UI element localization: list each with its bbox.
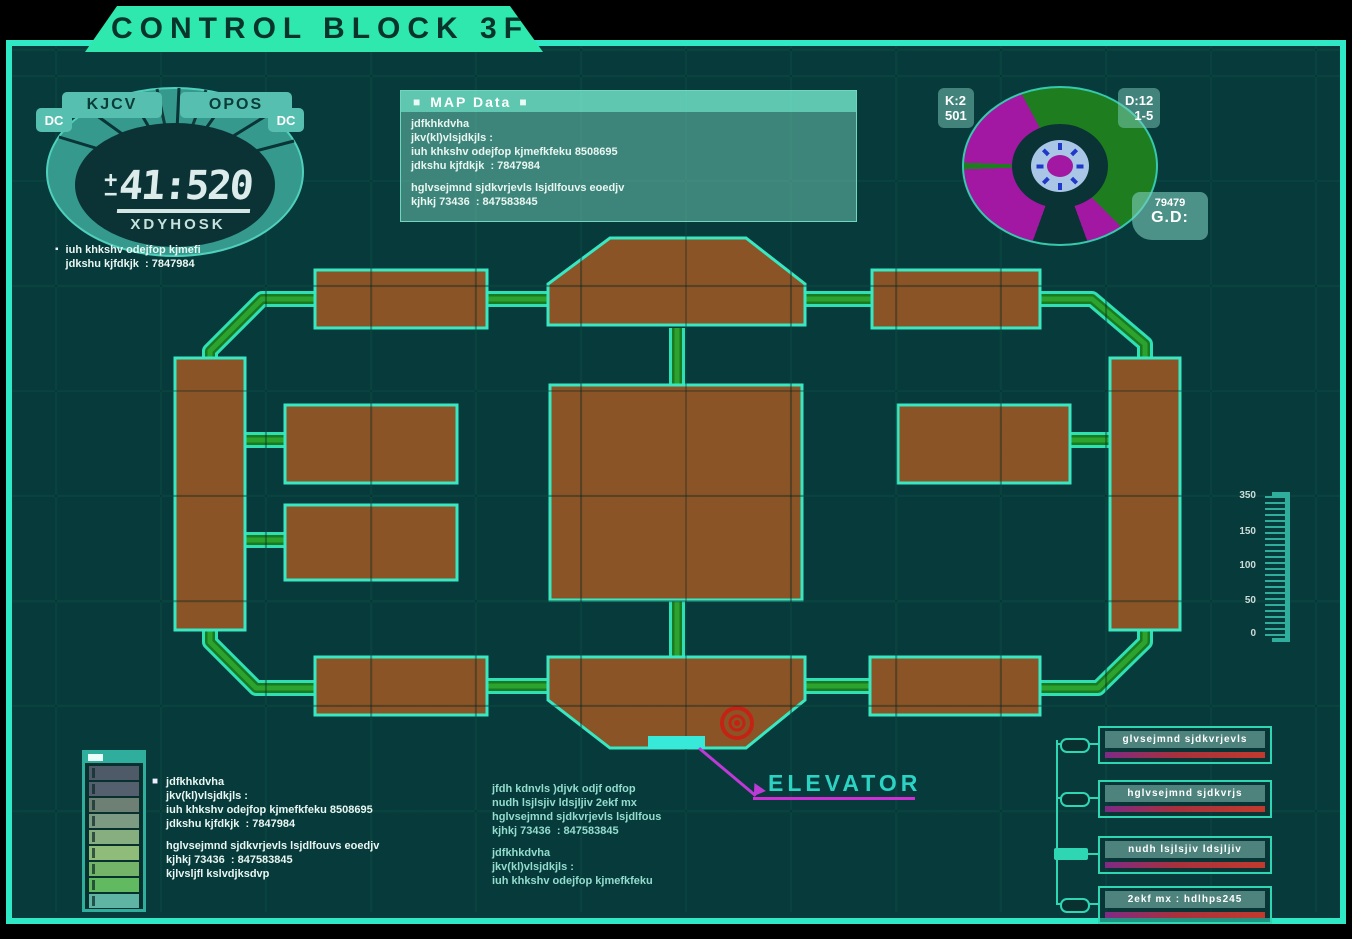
legend-color-bar [89,846,139,860]
legend-item[interactable]: 2ekf mx : hdlhps245 [1098,886,1272,924]
legend-color-bar [89,862,139,876]
gauge-note-line: iuh khkshv odejfop kjmefi [66,243,201,257]
scale-label: 100 [1239,560,1256,571]
room-top-right [872,270,1040,328]
plus-minus-sign: +− [104,174,117,202]
route-legend: glvsejmnd sjdkvrjevls hglvsejmnd sjdkvrj… [1040,720,1290,920]
scale-label: 350 [1239,490,1256,501]
legend-tab-icon [88,754,103,761]
note-line: kjhkj 73436 : 847583845 [166,853,379,867]
notes-left: ■ jdfkhkdvhajkv(kl)vlsjdkjls :iuh khkshv… [152,775,379,881]
legend-connector-line [1056,740,1058,905]
legend-gradient-bar [1105,752,1265,758]
note-line: jdfkhkdvha [492,846,661,860]
legend-node-icon[interactable] [1060,898,1090,913]
scale-label: 0 [1250,628,1256,639]
room-bottom-center [548,657,805,748]
color-legend-header [85,753,143,763]
ruler-ticks [1265,496,1285,638]
map-data-header: ■ MAP Data ■ [401,91,856,112]
room-mid-right [898,405,1070,483]
map-data-line: kjhkj 73436 : 847583845 [411,195,856,209]
note-line: iuh khkshv odejfop kjmefkfeku [492,874,661,888]
callout-underline [753,797,915,800]
compass-tick-icon [1077,165,1084,169]
control-block-map-screen: CONTROL BLOCK 3F KJCV OPOS DC DC +− 41:5… [0,0,1352,939]
map-data-line: jdfkhkdvha [411,117,856,131]
note-line: kjlvsljfl kslvdjksdvp [166,867,379,881]
depth-scale-ruler: 350 150 100 50 0 [1232,488,1294,646]
gauge-side-left: DC [36,108,72,132]
room-bottom-left [315,657,487,715]
note-line: iuh khkshv odejfop kjmefkfeku 8508695 [166,803,379,817]
compass-tick-icon [1037,165,1044,169]
legend-color-bar [89,894,139,908]
note-line: jkv(kl)vlsjdkjls : [166,789,379,803]
legend-color-bar [89,878,139,892]
note-line: nudh lsjlsjiv ldsjljiv 2ekf mx [492,796,661,810]
legend-color-bar [89,766,139,780]
legend-item[interactable]: hglvsejmnd sjdkvrjs [1098,780,1272,818]
map-data-line: jkv(kl)vlsjdkjls : [411,131,856,145]
legend-gradient-bar [1105,912,1265,918]
map-data-line: jdkshu kjfdkjk : 7847984 [411,159,856,173]
note-line: jdkshu kjfdkjk : 7847984 [166,817,379,831]
legend-color-bar [89,814,139,828]
elevator-label: ELEVATOR [768,770,921,797]
legend-gradient-bar [1105,806,1265,812]
header-square-icon: ■ [519,95,528,109]
map-data-panel: ■ MAP Data ■ jdfkhkdvhajkv(kl)vlsjdkjls … [400,90,857,222]
scale-label: 50 [1245,595,1256,606]
room-mid-left-upper [285,405,457,483]
note-bullet-icon: ■ [152,775,158,881]
room-top-center [548,238,805,325]
readout-digits: 41:520 [117,163,254,213]
gauge-label-left: KJCV [62,92,162,118]
page-title: CONTROL BLOCK 3F [111,12,529,46]
legend-gradient-bar [1105,862,1265,868]
room-top-left [315,270,487,328]
room-right-tall [1110,358,1180,630]
gauge-side-right: DC [268,108,304,132]
notes-center: jfdh kdnvls )djvk odjf odfopnudh lsjlsji… [492,782,661,888]
map-data-line: iuh khkshv odejfop kjmefkfeku 8508695 [411,145,856,159]
room-mid-left-lower [285,505,457,580]
legend-node-icon[interactable] [1060,738,1090,753]
pie-stat-bottom: 79479 G.D: [1132,192,1208,240]
gauge-note: ▪ iuh khkshv odejfop kjmefijdkshu kjfdkj… [55,243,201,271]
legend-item[interactable]: glvsejmnd sjdkvrjevls [1098,726,1272,764]
legend-color-bar [89,798,139,812]
compass-core [1047,155,1073,177]
note-line: hglvsejmnd sjdkvrjevls lsjdlfous [492,810,661,824]
room-center [550,385,802,600]
digital-readout: +− 41:520 XDYHOSK [83,163,273,233]
compass-tick-icon [1058,143,1062,150]
color-bar-legend [82,750,146,912]
pie-stat-right: D:121-5 [1118,88,1160,128]
note-bullet-icon: ▪ [55,243,59,271]
elevator-marker[interactable] [648,736,705,749]
scale-label: 150 [1239,526,1256,537]
room-left-tall [175,358,245,630]
title-tab: CONTROL BLOCK 3F [85,6,555,52]
note-line: jkv(kl)vlsjdkjls : [492,860,661,874]
legend-node-icon[interactable] [1060,792,1090,807]
compass-tick-icon [1058,183,1062,190]
map-data-title: MAP Data [430,94,511,110]
note-line: jdfkhkdvha [166,775,379,789]
map-data-body: jdfkhkdvhajkv(kl)vlsjdkjls :iuh khkshv o… [401,112,856,221]
legend-color-bar [89,782,139,796]
map-data-line: hglvsejmnd sjdkvrjevls lsjdlfouvs eoedjv [411,181,856,195]
note-line: jfdh kdnvls )djvk odjf odfop [492,782,661,796]
rooms [175,238,1180,748]
pie-stat-left: K:2501 [938,88,974,128]
legend-item[interactable]: nudh lsjlsjiv ldsjljiv [1098,836,1272,874]
readout-caption: XDYHOSK [83,216,273,233]
gauge-note-line: jdkshu kjfdkjk : 7847984 [66,257,201,271]
note-line: kjhkj 73436 : 847583845 [492,824,661,838]
legend-node-selected-icon[interactable] [1054,848,1088,860]
header-square-icon: ■ [413,95,422,109]
room-bottom-right [870,657,1040,715]
note-line: hglvsejmnd sjdkvrjevls lsjdlfouvs eoedjv [166,839,379,853]
legend-color-bar [89,830,139,844]
